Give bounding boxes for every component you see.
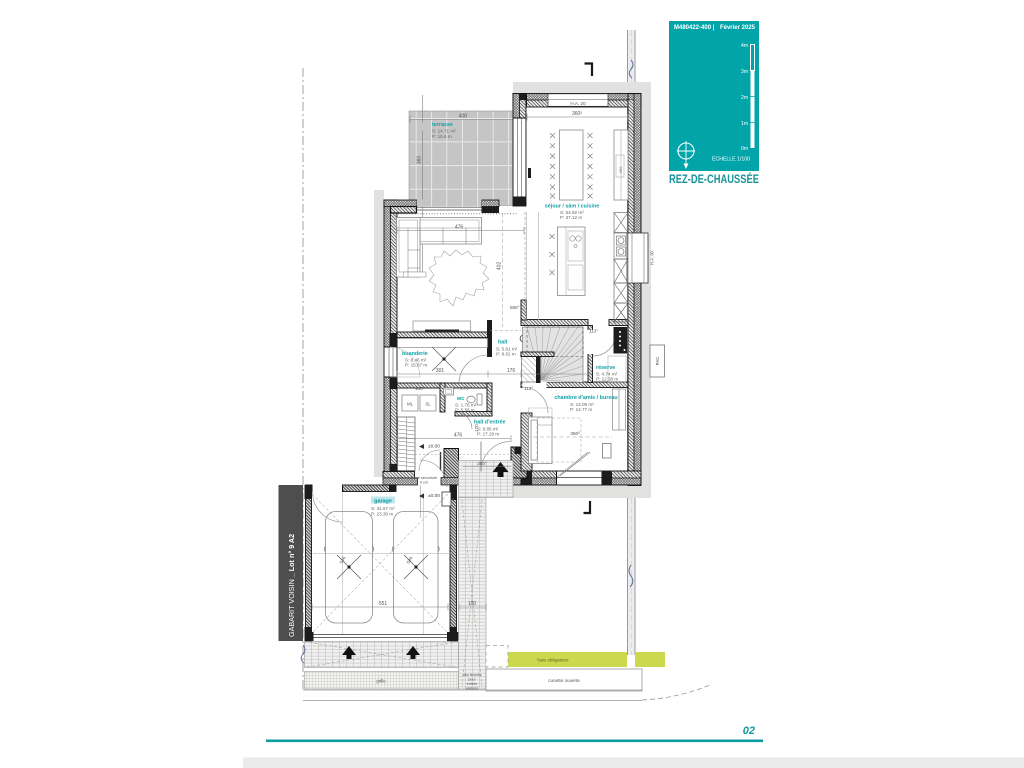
svg-text:chambre d'amis / bureau: chambre d'amis / bureau [554, 395, 617, 401]
svg-text:176: 176 [507, 368, 516, 374]
svg-text:±0.00: ±0.00 [428, 444, 440, 450]
svg-text:hall: hall [498, 340, 508, 346]
svg-text:551: 551 [379, 601, 388, 607]
svg-text:S: 31.67 m²: S: 31.67 m² [371, 506, 395, 511]
svg-text:476: 476 [454, 433, 463, 439]
svg-text:P: 17.29 m: P: 17.29 m [477, 432, 499, 437]
svg-text:301: 301 [436, 368, 445, 374]
svg-text:3m: 3m [741, 69, 748, 75]
svg-text:ML: ML [407, 402, 414, 407]
svg-text:113°: 113° [589, 329, 598, 334]
svg-text:1m: 1m [741, 121, 748, 127]
svg-text:buanderie: buanderie [402, 351, 428, 357]
svg-text:REZ-DE-CHAUSSÉE: REZ-DE-CHAUSSÉE [669, 171, 759, 186]
svg-text:P: 14.77 m: P: 14.77 m [570, 407, 592, 412]
svg-text:M480422-400 |: M480422-400 | [674, 25, 715, 31]
svg-text:360²: 360² [570, 431, 580, 437]
svg-text:476: 476 [455, 225, 464, 231]
svg-text:Février 2025: Février 2025 [720, 25, 756, 31]
svg-text:360: 360 [417, 156, 423, 165]
svg-text:ÉCHELLE 1/100: ÉCHELLE 1/100 [712, 156, 750, 163]
svg-text:haie obligatoire: haie obligatoire [537, 658, 569, 663]
svg-text:séjour / sàm / cuisine: séjour / sàm / cuisine [545, 204, 600, 210]
svg-text:entrée: entrée [467, 682, 478, 686]
svg-text:888°: 888° [510, 305, 520, 310]
svg-text:PAC: PAC [655, 357, 660, 366]
svg-text:400: 400 [459, 114, 468, 120]
svg-text:P: 37.12 m: P: 37.12 m [560, 215, 582, 220]
svg-text:4m: 4m [741, 43, 748, 49]
svg-text:grille: grille [376, 679, 386, 684]
svg-text:réserve: réserve [596, 365, 615, 371]
svg-text:P: 8.62 m: P: 8.62 m [496, 352, 516, 357]
svg-text:1.76: 1.76 [460, 386, 469, 391]
svg-text:H.A. 90: H.A. 90 [650, 250, 655, 265]
svg-text:02: 02 [743, 725, 755, 737]
svg-text:143°: 143° [415, 386, 425, 391]
svg-text:P: 5.56 m: P: 5.56 m [455, 408, 475, 413]
svg-text:360²: 360² [572, 111, 582, 117]
svg-text:GABARIT VOISIN _ Lot n° 9 A2: GABARIT VOISIN _ Lot n° 9 A2 [287, 534, 296, 637]
svg-text:P: 15.6 m: P: 15.6 m [432, 134, 452, 139]
svg-text:cunette ouverte: cunette ouverte [548, 678, 580, 683]
svg-text:garage: garage [374, 498, 392, 504]
svg-text:SL: SL [425, 402, 431, 407]
svg-text:113°: 113° [524, 386, 533, 391]
svg-text:100: 100 [468, 601, 477, 607]
svg-text:2m: 2m [741, 95, 748, 101]
svg-text:dès fermée: dès fermée [463, 673, 482, 677]
svg-text:pour: pour [468, 678, 476, 682]
svg-text:P: 23.30 m: P: 23.30 m [371, 511, 393, 516]
svg-text:4 cm: 4 cm [420, 481, 428, 485]
svg-text:wc: wc [456, 396, 464, 402]
svg-text:402: 402 [497, 262, 503, 271]
svg-text:380: 380 [618, 166, 623, 173]
svg-text:terrasse: terrasse [432, 122, 453, 128]
svg-text:H.A. 20: H.A. 20 [570, 101, 586, 106]
svg-text:±0.00: ±0.00 [428, 493, 440, 499]
svg-text:P: 15.87 m: P: 15.87 m [405, 363, 427, 368]
svg-text:hall d'entrée: hall d'entrée [474, 420, 506, 426]
svg-text:Porte sécurisée: Porte sécurisée [411, 476, 437, 480]
svg-text:0m: 0m [741, 146, 748, 152]
svg-text:P: 12.38 m: P: 12.38 m [596, 377, 618, 382]
